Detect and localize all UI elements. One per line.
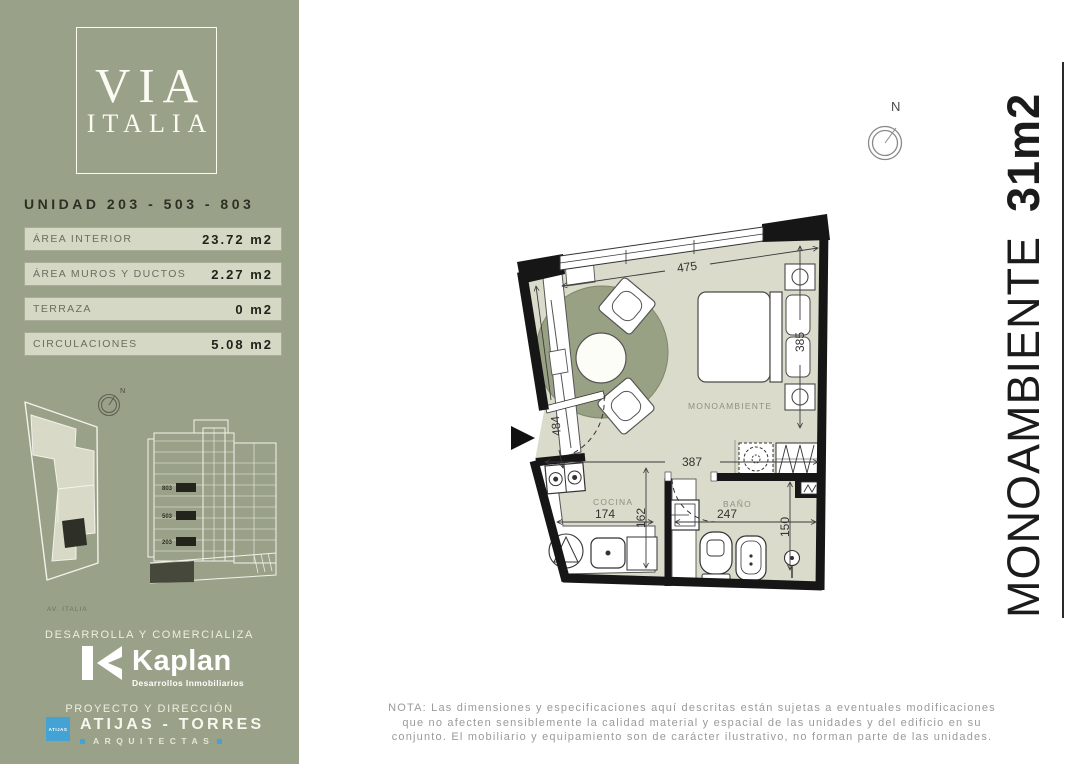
kaplan-logo: Kaplan Desarrollos Inmobiliarios [82, 646, 244, 688]
kaplan-tagline: Desarrollos Inmobiliarios [132, 678, 244, 688]
kaplan-mark-icon [82, 646, 122, 680]
floor-label: 203 [162, 540, 173, 546]
area-label: CIRCULACIONES [33, 338, 138, 350]
vanity-counter [672, 479, 696, 585]
entry-arrow-icon [511, 426, 535, 450]
area-label: ÁREA INTERIOR [33, 233, 132, 245]
room-label-bath: BAÑO [723, 499, 752, 509]
site-compass-icon [99, 395, 120, 416]
closet [776, 443, 821, 475]
floor-label: 803 [162, 486, 173, 492]
atijas-name: ATIJAS - TORRES [80, 717, 264, 733]
site-and-elevation: N AV. ITALIA [18, 383, 284, 613]
developer-heading: DESARROLLA Y COMERCIALIZA [0, 629, 299, 641]
elevation-base [150, 561, 194, 583]
page-title-text: MONOAMBIENTE [998, 236, 1049, 618]
dim-mid: 387 [682, 455, 702, 469]
floor-plan: 475 385 484 387 174 162 247 150 MONOAMBI… [505, 200, 985, 600]
dim-bath-w: 247 [717, 507, 737, 521]
table-row: ÁREA MUROS Y DUCTOS 2.27 m2 [24, 262, 282, 286]
via-italia-logo: VIA ITALIA [76, 27, 217, 174]
area-value: 0 m2 [235, 302, 273, 317]
floor-label: 503 [162, 514, 173, 520]
elevation-floor-labels: 803 503 203 [162, 486, 173, 546]
atijas-subtitle: ARQUITECTAS [93, 736, 214, 746]
atijas-torres-logo: ATIJAS ATIJAS - TORRES ARQUITECTAS [46, 717, 264, 746]
dim-kitchen-h: 162 [634, 508, 648, 528]
table-row: ÁREA INTERIOR 23.72 m2 [24, 227, 282, 251]
sidebar: VIA ITALIA UNIDAD 203 - 503 - 803 ÁREA I… [0, 0, 299, 764]
site-plan [25, 402, 98, 580]
site-compass-label: N [120, 386, 125, 395]
dim-bath-h: 150 [778, 517, 792, 537]
page-title-bold: 31m2 [998, 93, 1049, 212]
dim-top: 475 [676, 259, 698, 276]
area-label: TERRAZA [33, 303, 92, 315]
table-row: TERRAZA 0 m2 [24, 297, 282, 321]
side-title-rule [1062, 62, 1064, 618]
logo-line1: VIA [95, 63, 206, 109]
under-counter-unit [627, 537, 657, 570]
north-compass-icon: N [855, 95, 919, 167]
elevation-unit-markers [176, 483, 196, 546]
toilet [700, 532, 732, 584]
dim-left: 484 [548, 415, 564, 437]
north-label: N [891, 99, 900, 114]
area-value: 2.27 m2 [211, 267, 273, 282]
bidet [736, 536, 766, 580]
building-elevation [148, 420, 276, 583]
area-table: ÁREA INTERIOR 23.72 m2 ÁREA MUROS Y DUCT… [24, 227, 282, 367]
area-value: 5.08 m2 [211, 337, 273, 352]
area-label: ÁREA MUROS Y DUCTOS [33, 268, 186, 280]
atijas-badge: ATIJAS [46, 717, 70, 741]
stove [545, 463, 585, 494]
round-table [576, 333, 626, 383]
street-label: AV. ITALIA [47, 606, 88, 613]
blue-square-icon [80, 739, 85, 744]
blue-square-icon [217, 739, 222, 744]
kaplan-name: Kaplan [132, 646, 244, 676]
washing-machine [739, 443, 773, 475]
architects-heading: PROYECTO Y DIRECCIÓN [0, 703, 299, 715]
note-line: conjunto. El mobiliario y equipamiento s… [368, 730, 1016, 745]
logo-line2: ITALIA [87, 109, 214, 139]
note-line: NOTA: Las dimensiones y especificaciones… [368, 701, 1016, 716]
plan-sheet: VIA ITALIA UNIDAD 203 - 503 - 803 ÁREA I… [0, 0, 1080, 764]
area-value: 23.72 m2 [202, 232, 273, 247]
dim-bed: 385 [793, 332, 807, 352]
site-unit-marker [62, 518, 87, 548]
room-label-main: MONOAMBIENTE [688, 401, 772, 411]
dim-kitchen-w: 174 [595, 507, 615, 521]
unit-title: UNIDAD 203 - 503 - 803 [24, 196, 254, 212]
kitchen-sink [591, 538, 625, 568]
room-label-kitchen: COCINA [593, 497, 633, 507]
note-line: que no afecten sensiblemente la calidad … [368, 716, 1016, 731]
page-title: MONOAMBIENTE 31m2 [998, 56, 1060, 618]
table-row: CIRCULACIONES 5.08 m2 [24, 332, 282, 356]
disclaimer-note: NOTA: Las dimensiones y especificaciones… [368, 701, 1016, 745]
